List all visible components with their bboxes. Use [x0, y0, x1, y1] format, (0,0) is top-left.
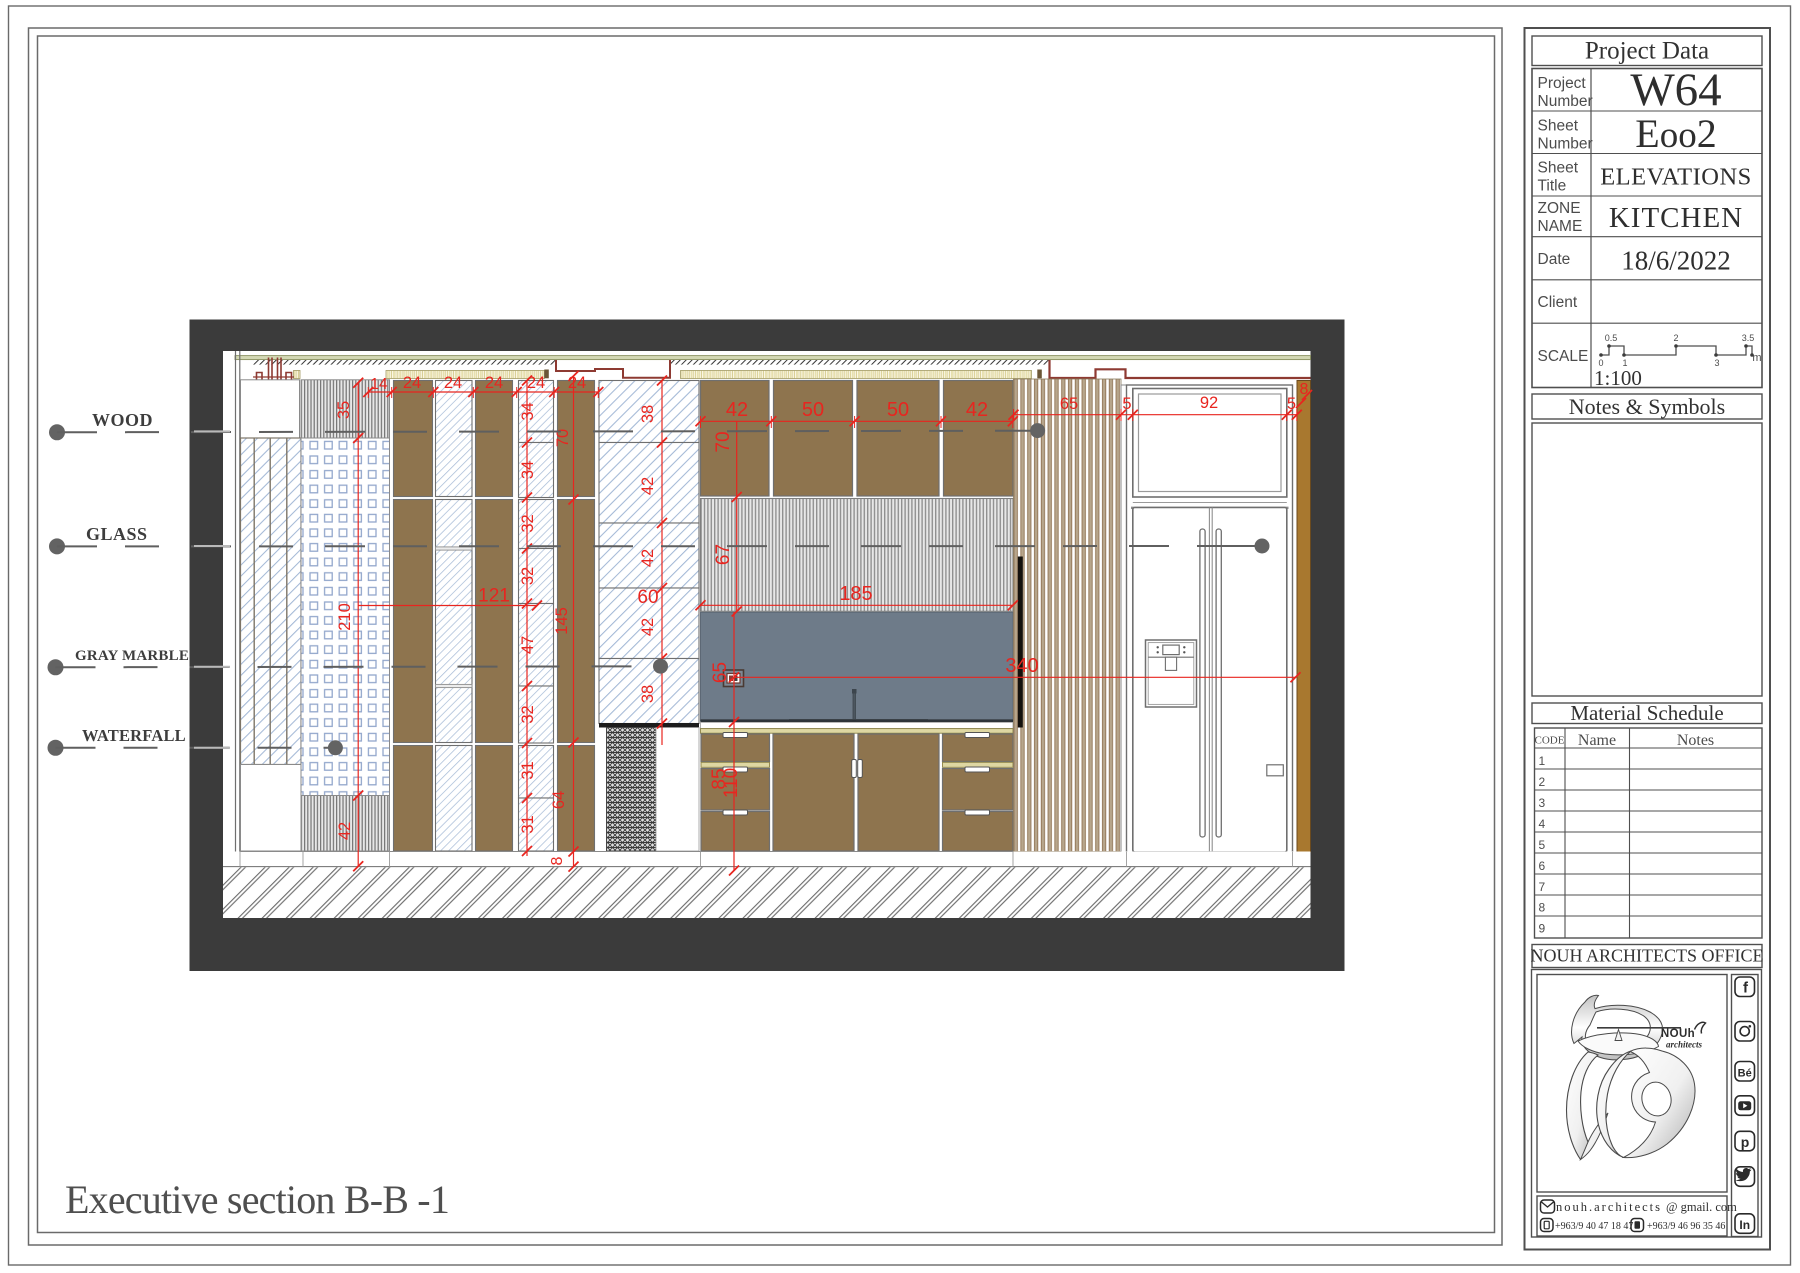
svg-text:Notes: Notes: [1677, 732, 1714, 749]
svg-text:121: 121: [478, 586, 510, 607]
svg-text:38: 38: [639, 405, 657, 423]
svg-text:64: 64: [550, 791, 568, 809]
svg-text:34: 34: [519, 402, 537, 420]
svg-text:Eoo2: Eoo2: [1635, 111, 1716, 156]
svg-text:24: 24: [403, 374, 421, 392]
svg-text:ELEVATIONS: ELEVATIONS: [1600, 164, 1752, 191]
svg-text:6: 6: [1539, 859, 1546, 873]
svg-text:1: 1: [1539, 754, 1546, 768]
svg-text:Project Data: Project Data: [1585, 38, 1709, 65]
svg-text:50: 50: [887, 399, 909, 421]
svg-text:@ gmail. com: @ gmail. com: [1666, 1200, 1737, 1214]
svg-text:65: 65: [710, 662, 731, 683]
svg-text:31: 31: [519, 761, 537, 779]
svg-text:Bé: Bé: [1738, 1068, 1752, 1080]
svg-text:SCALE: SCALE: [1538, 348, 1589, 365]
svg-text:42: 42: [966, 399, 988, 421]
svg-text:7: 7: [1539, 880, 1546, 894]
svg-text:31: 31: [519, 815, 537, 833]
svg-text:60: 60: [637, 587, 658, 608]
svg-text:architects: architects: [1666, 1040, 1702, 1050]
svg-text:ZONE: ZONE: [1538, 200, 1581, 217]
svg-text:2: 2: [1673, 333, 1678, 343]
svg-text:Number: Number: [1538, 93, 1593, 110]
svg-text:42: 42: [639, 477, 657, 495]
svg-text:5: 5: [1287, 395, 1296, 413]
svg-text:32: 32: [519, 705, 537, 723]
svg-text:CODE: CODE: [1535, 735, 1565, 747]
svg-text:340: 340: [1005, 655, 1038, 677]
svg-text:34: 34: [519, 461, 537, 479]
svg-text:Title: Title: [1538, 178, 1567, 195]
svg-text:3.5: 3.5: [1742, 333, 1755, 343]
svg-text:NOUH ARCHITECTS OFFICE: NOUH ARCHITECTS OFFICE: [1530, 946, 1763, 966]
svg-text:65: 65: [1060, 395, 1078, 413]
svg-text:32: 32: [519, 514, 537, 532]
svg-text:Name: Name: [1578, 732, 1616, 749]
svg-text:42: 42: [639, 549, 657, 567]
svg-text:5: 5: [1122, 395, 1131, 413]
svg-text:14: 14: [370, 376, 388, 393]
svg-text:35: 35: [335, 401, 353, 419]
svg-text:5: 5: [1539, 838, 1546, 852]
svg-text:+963/9 40 47 18 47: +963/9 40 47 18 47: [1555, 1221, 1633, 1232]
svg-text:3: 3: [1714, 358, 1719, 368]
svg-text:47: 47: [519, 636, 537, 654]
svg-text:Notes & Symbols: Notes & Symbols: [1569, 394, 1725, 419]
svg-text:50: 50: [802, 399, 824, 421]
svg-text:3: 3: [1539, 796, 1546, 810]
svg-text:Material Schedule: Material Schedule: [1570, 701, 1723, 725]
svg-text:8: 8: [1539, 901, 1546, 915]
svg-text:2: 2: [1539, 775, 1546, 789]
svg-text:p: p: [1741, 1134, 1750, 1150]
svg-text:GLASS: GLASS: [86, 524, 148, 544]
svg-text:Number: Number: [1538, 136, 1593, 153]
svg-text:38: 38: [639, 685, 657, 703]
svg-text:18/6/2022: 18/6/2022: [1621, 246, 1731, 276]
svg-text:W64: W64: [1630, 64, 1721, 116]
svg-text:Project: Project: [1538, 75, 1587, 92]
svg-text:8: 8: [549, 856, 566, 865]
svg-text:NAME: NAME: [1538, 218, 1583, 235]
svg-text:GRAY MARBLE: GRAY MARBLE: [75, 648, 189, 664]
svg-text:24: 24: [444, 374, 462, 392]
svg-text:145: 145: [553, 607, 571, 635]
svg-text:24: 24: [568, 374, 586, 392]
svg-text:Client: Client: [1538, 294, 1578, 311]
svg-text:0.5: 0.5: [1605, 333, 1618, 343]
svg-text:4: 4: [1539, 817, 1546, 831]
svg-text:NOUh: NOUh: [1661, 1028, 1695, 1040]
svg-text:92: 92: [1200, 394, 1218, 412]
svg-text:210: 210: [336, 603, 354, 631]
svg-text:24: 24: [485, 374, 503, 392]
svg-text:32: 32: [519, 567, 537, 585]
svg-text:+963/9 46 96 35 46: +963/9 46 96 35 46: [1647, 1221, 1725, 1232]
svg-text:110: 110: [721, 768, 742, 798]
svg-text:m: m: [1752, 352, 1761, 364]
svg-text:185: 185: [839, 583, 872, 605]
svg-text:WATERFALL: WATERFALL: [82, 726, 186, 745]
svg-text:Date: Date: [1538, 251, 1571, 268]
svg-text:1:100: 1:100: [1594, 366, 1642, 390]
svg-text:42: 42: [726, 399, 748, 421]
svg-text:42: 42: [336, 822, 354, 840]
svg-text:Sheet: Sheet: [1538, 118, 1579, 135]
svg-text:In: In: [1739, 1218, 1750, 1232]
svg-text:WOOD: WOOD: [92, 410, 153, 430]
svg-text:42: 42: [639, 618, 657, 636]
svg-text:70: 70: [713, 431, 734, 452]
svg-text:Sheet: Sheet: [1538, 160, 1579, 177]
svg-text:KITCHEN: KITCHEN: [1609, 202, 1743, 234]
svg-text:9: 9: [1539, 922, 1546, 936]
svg-text:Executive section B-B -1: Executive section B-B -1: [65, 1177, 449, 1222]
svg-text:nouh.architects: nouh.architects: [1556, 1200, 1662, 1214]
svg-text:8: 8: [1300, 381, 1309, 398]
